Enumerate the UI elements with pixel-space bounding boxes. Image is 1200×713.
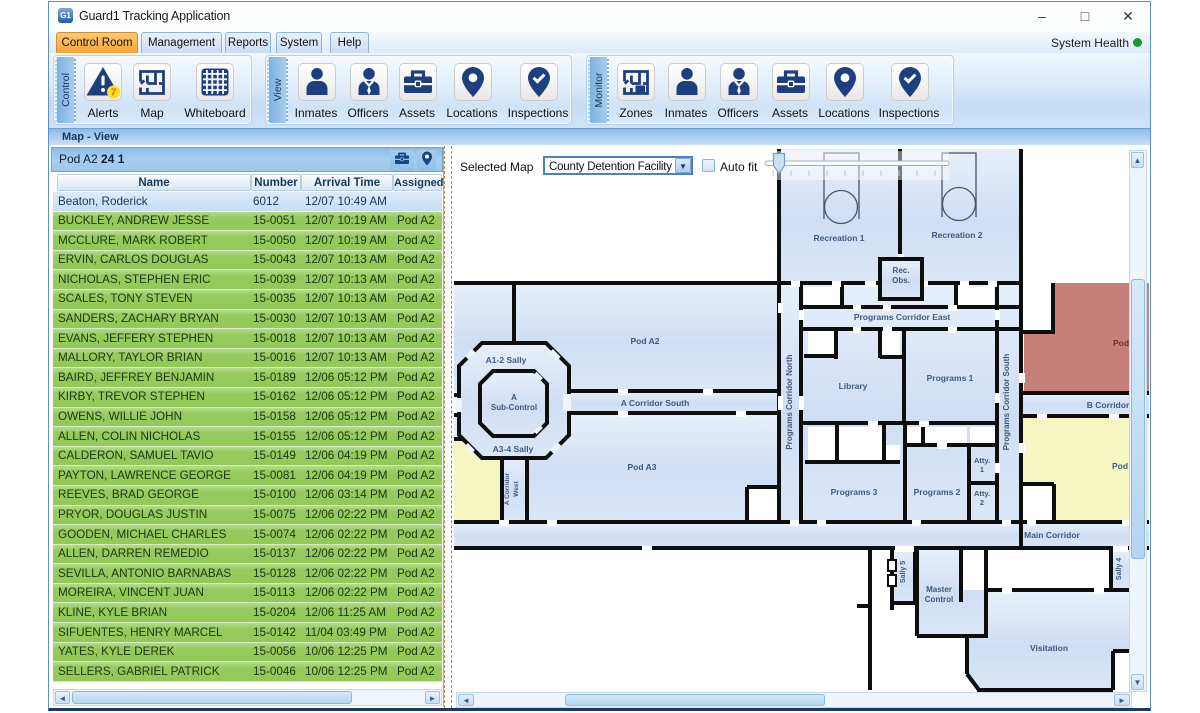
svg-text:West: West: [513, 480, 520, 496]
svg-text:Programs Corridor North: Programs Corridor North: [785, 354, 794, 449]
svg-text:B Corridor: B Corridor: [1087, 400, 1130, 410]
svg-text:Sally 4: Sally 4: [1116, 558, 1123, 580]
svg-text:Pod A3: Pod A3: [628, 462, 657, 472]
svg-text:Main Corridor: Main Corridor: [1024, 530, 1080, 540]
svg-text:Obs.: Obs.: [892, 276, 910, 285]
svg-text:A Corridor: A Corridor: [504, 472, 511, 505]
svg-text:Visitation: Visitation: [1030, 643, 1068, 653]
svg-text:Library: Library: [839, 381, 868, 391]
svg-text:Programs 1: Programs 1: [927, 373, 974, 383]
svg-text:Recreation 2: Recreation 2: [931, 230, 982, 240]
svg-text:Rec.: Rec.: [893, 266, 910, 275]
svg-text:Pod A2: Pod A2: [631, 336, 660, 346]
svg-text:A Corridor South: A Corridor South: [621, 398, 690, 408]
svg-text:2: 2: [980, 498, 984, 507]
svg-text:A3-4 Sally: A3-4 Sally: [493, 444, 534, 454]
svg-text:Pod: Pod: [1112, 461, 1128, 471]
svg-text:Sub-Control: Sub-Control: [491, 403, 537, 412]
svg-text:Sally 5: Sally 5: [900, 561, 907, 583]
svg-text:1: 1: [980, 465, 984, 474]
svg-text:A1-2 Sally: A1-2 Sally: [486, 355, 527, 365]
svg-text:Atty.: Atty.: [974, 489, 990, 498]
svg-text:Master: Master: [926, 585, 952, 594]
svg-text:Atty.: Atty.: [974, 456, 990, 465]
svg-text:Programs Corridor East: Programs Corridor East: [854, 312, 951, 322]
svg-text:Pod: Pod: [1113, 338, 1129, 348]
svg-text:Programs Corridor South: Programs Corridor South: [1002, 354, 1011, 451]
svg-text:Programs 3: Programs 3: [831, 487, 878, 497]
svg-text:Control: Control: [925, 595, 953, 604]
svg-text:Programs 2: Programs 2: [914, 487, 961, 497]
svg-text:Recreation 1: Recreation 1: [813, 233, 864, 243]
svg-text:7: 7: [111, 88, 117, 99]
svg-text:A: A: [511, 393, 517, 402]
